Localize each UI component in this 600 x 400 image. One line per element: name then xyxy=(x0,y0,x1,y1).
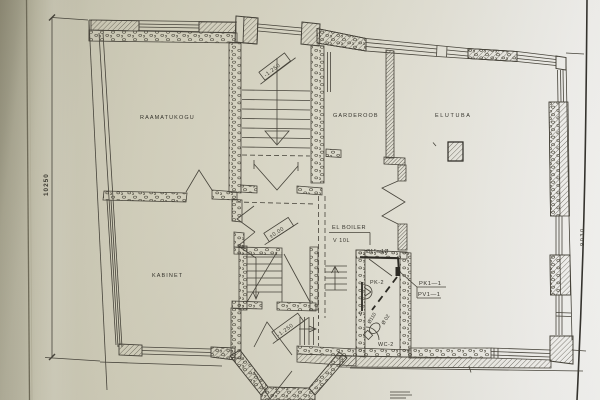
svg-text:GARDEROOB: GARDEROOB xyxy=(333,113,379,119)
svg-text:ELUTUBA: ELUTUBA xyxy=(435,113,472,119)
svg-text:-1.250: -1.250 xyxy=(263,63,282,79)
svg-text:PV1—1: PV1—1 xyxy=(418,292,440,298)
svg-text:Ø 02: Ø 02 xyxy=(381,314,392,327)
svg-text:9030: 9030 xyxy=(580,227,586,246)
svg-text:-1.250: -1.250 xyxy=(276,323,295,339)
svg-text:KABINET: KABINET xyxy=(152,273,183,279)
svg-text:Ø15w1Ø: Ø15w1Ø xyxy=(366,249,389,255)
svg-text:10250: 10250 xyxy=(43,173,50,196)
svg-text:PK1—1: PK1—1 xyxy=(419,281,441,287)
svg-text:PK-2: PK-2 xyxy=(370,280,384,286)
svg-text:RAAMATUKOGU: RAAMATUKOGU xyxy=(140,115,195,121)
svg-text:V 10L: V 10L xyxy=(333,238,350,244)
svg-text:WC-2: WC-2 xyxy=(378,342,394,348)
svg-text:EL BOILER: EL BOILER xyxy=(332,225,366,231)
